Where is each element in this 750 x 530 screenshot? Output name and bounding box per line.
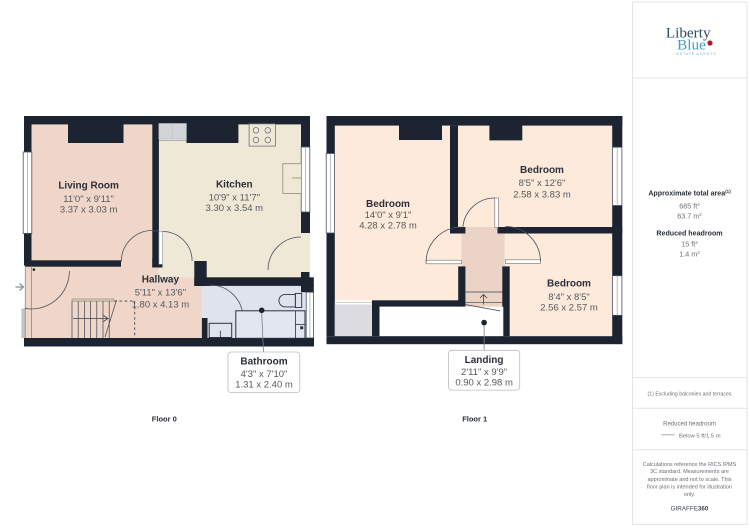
svg-text:11'0" x 9'11": 11'0" x 9'11" — [63, 194, 114, 205]
svg-text:2.56 x 2.57 m: 2.56 x 2.57 m — [540, 303, 598, 314]
svg-text:3C standard. Measurements are: 3C standard. Measurements are — [650, 469, 729, 475]
svg-text:4.28 x 2.78 m: 4.28 x 2.78 m — [359, 221, 417, 232]
svg-text:Floor 1: Floor 1 — [462, 414, 487, 423]
svg-text:1.31 x 2.40 m: 1.31 x 2.40 m — [235, 380, 293, 391]
svg-text:floor plan is intended for ill: floor plan is intended for illustration — [647, 484, 732, 490]
svg-text:8'5" x 12'6": 8'5" x 12'6" — [519, 178, 566, 189]
svg-text:Living Room: Living Room — [58, 180, 119, 191]
svg-text:1.4 m2: 1.4 m2 — [679, 250, 700, 259]
svg-text:3.37 x 3.03 m: 3.37 x 3.03 m — [60, 204, 118, 215]
svg-text:GIRAFFE360: GIRAFFE360 — [671, 506, 709, 513]
svg-text:Bedroom: Bedroom — [520, 165, 564, 176]
svg-text:Bathroom: Bathroom — [240, 357, 287, 368]
svg-text:14'0" x 9'1": 14'0" x 9'1" — [365, 210, 412, 221]
svg-text:Reduced headroom: Reduced headroom — [663, 421, 716, 427]
svg-text:1.80 x 4.13 m: 1.80 x 4.13 m — [132, 299, 190, 310]
svg-text:Reduced headroom: Reduced headroom — [656, 230, 722, 238]
svg-text:Floor 0: Floor 0 — [152, 414, 177, 423]
svg-text:Bedroom: Bedroom — [547, 279, 591, 290]
svg-text:3.30 x 3.54 m: 3.30 x 3.54 m — [206, 203, 264, 214]
svg-text:ESTATE AGENTS: ESTATE AGENTS — [676, 51, 716, 56]
svg-text:0.90 x 2.98 m: 0.90 x 2.98 m — [455, 377, 513, 388]
svg-text:63.7 m2: 63.7 m2 — [677, 212, 702, 221]
svg-text:2.58 x 3.83 m: 2.58 x 3.83 m — [513, 189, 571, 200]
svg-text:Hallway: Hallway — [142, 275, 180, 286]
svg-text:approximate and not to scale.: approximate and not to scale. This — [648, 477, 732, 483]
svg-text:8'4" x 8'5": 8'4" x 8'5" — [548, 292, 590, 303]
svg-text:Approximate total area(1): Approximate total area(1) — [648, 189, 731, 198]
svg-text:(1) Excluding balconies and te: (1) Excluding balconies and terraces — [648, 392, 732, 398]
svg-text:Below 5 ft/1.5 m: Below 5 ft/1.5 m — [679, 433, 721, 439]
svg-text:Kitchen: Kitchen — [216, 179, 253, 190]
svg-text:685 ft2: 685 ft2 — [679, 202, 700, 211]
svg-text:2'11" x 9'9": 2'11" x 9'9" — [461, 367, 507, 378]
svg-text:4'3" x 7'10": 4'3" x 7'10" — [241, 369, 288, 380]
svg-text:Calculations reference the RIC: Calculations reference the RICS IPMS — [643, 462, 737, 468]
svg-text:5'11" x 13'6": 5'11" x 13'6" — [135, 287, 186, 298]
svg-text:Bedroom: Bedroom — [366, 199, 410, 210]
svg-text:Landing: Landing — [465, 355, 504, 366]
svg-text:only.: only. — [684, 492, 696, 498]
